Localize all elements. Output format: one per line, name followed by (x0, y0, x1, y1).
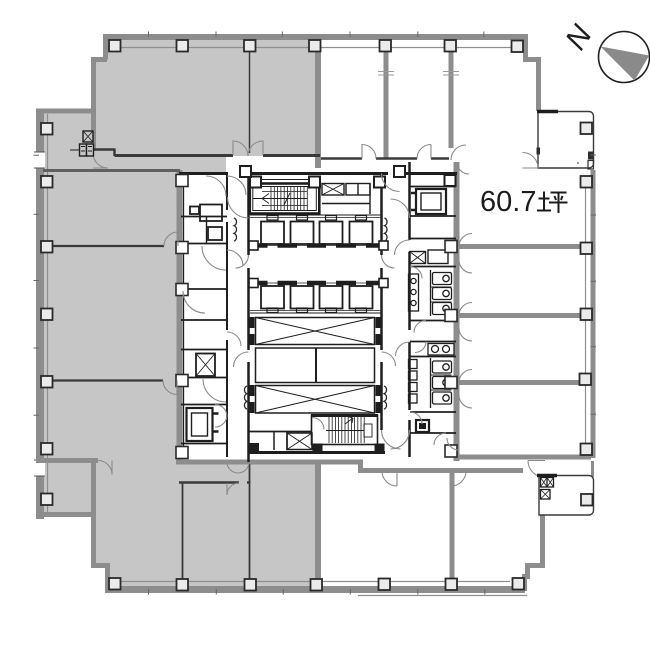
svg-text:60.7: 60.7 (480, 186, 536, 218)
